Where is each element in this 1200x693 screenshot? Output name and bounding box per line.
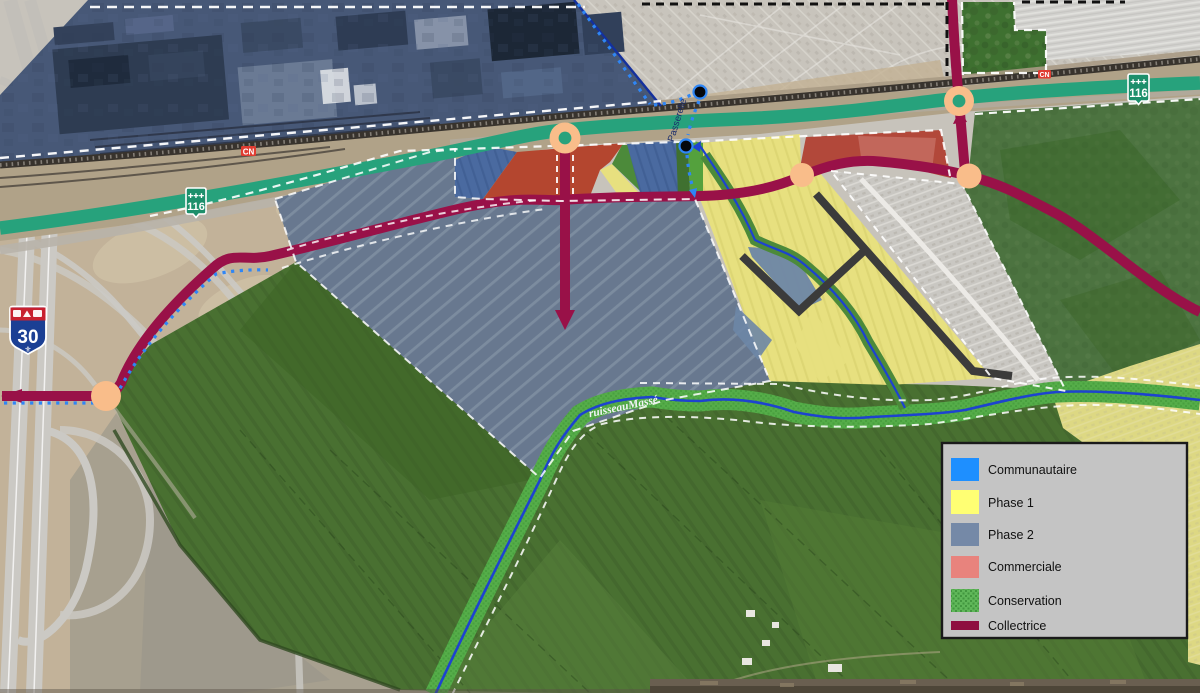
svg-text:✚✚✚: ✚✚✚ [188, 192, 205, 200]
svg-text:CN: CN [1039, 72, 1049, 79]
svg-text:Conservation: Conservation [988, 594, 1062, 608]
svg-text:✚✚✚: ✚✚✚ [1130, 78, 1147, 86]
svg-text:116: 116 [1129, 88, 1148, 100]
svg-text:Commerciale: Commerciale [988, 560, 1062, 574]
svg-text:Communautaire: Communautaire [988, 463, 1077, 477]
svg-text:CN: CN [243, 148, 255, 157]
svg-text:116: 116 [187, 201, 205, 213]
svg-text:⚜: ⚜ [24, 345, 31, 354]
svg-text:Collectrice: Collectrice [988, 619, 1046, 633]
svg-text:Phase 2: Phase 2 [988, 528, 1034, 542]
svg-text:Phase 1: Phase 1 [988, 496, 1034, 510]
